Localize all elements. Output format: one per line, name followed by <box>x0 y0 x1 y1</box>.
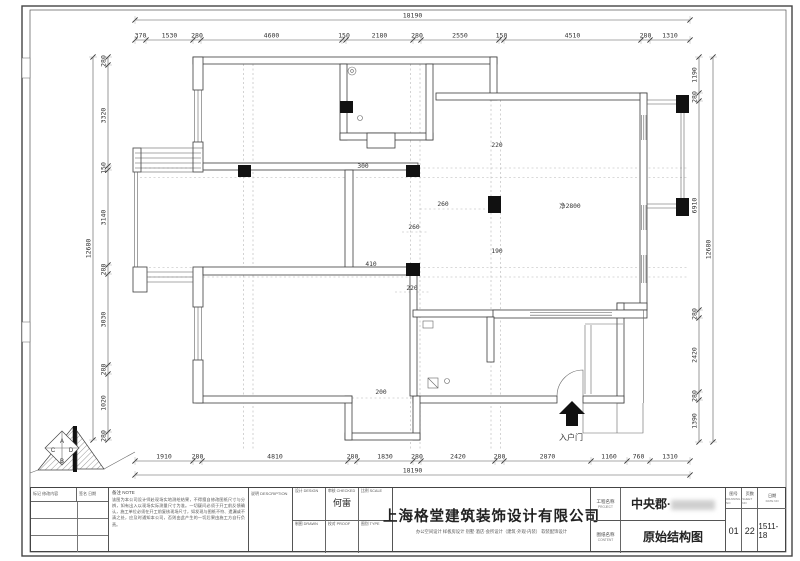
note-text: 该图为本公司设计师赴现场实地测绘结果，不得擅自修改图纸尺寸与分辨，如有出入以现场… <box>112 497 245 528</box>
personnel-cell: 审核 CHECKED何雷 <box>326 488 359 521</box>
dim-label: 1390 <box>691 413 699 429</box>
dim-label: 1020 <box>100 395 108 411</box>
columns-layer <box>238 95 689 276</box>
walls-layer <box>133 57 647 440</box>
personnel-value: 何雷 <box>326 496 358 509</box>
dim-label: 280 <box>411 453 423 461</box>
dim-label: 4810 <box>267 453 283 461</box>
personnel-label: 比例 SCALE <box>359 488 392 494</box>
project-name: 中央郡· <box>631 497 671 511</box>
dim-label: 370 <box>135 32 147 40</box>
drawing-no-value: 01 <box>726 509 741 553</box>
dim-label: 280 <box>494 453 506 461</box>
interior-dim: 260 <box>437 201 449 208</box>
interior-dim: 190 <box>491 248 503 255</box>
personnel-cell: 制图 DRAWN <box>293 521 326 554</box>
logo-letter: C <box>51 448 56 454</box>
revision-row <box>31 519 108 536</box>
note-block: 备注 NOTE 该图为本公司设计师赴现场实地测绘结果，不得擅自修改图纸尺寸与分辨… <box>109 488 249 551</box>
dim-label: 280 <box>192 453 204 461</box>
dim-label: 2180 <box>372 32 388 40</box>
sheet-no-label-en: SHEET NO <box>742 497 757 505</box>
dim-label: 280 <box>640 32 652 40</box>
dim-label: 1830 <box>377 453 393 461</box>
dim-label: 3320 <box>100 108 108 124</box>
dim-label: 280 <box>691 91 699 103</box>
dim-label: 280 <box>100 430 108 442</box>
drawing-sheet: 入户门 300 220 260 260 410 220 190 200 净280… <box>0 0 800 561</box>
project-label-en: PROJECT <box>598 505 613 509</box>
interior-dim: 200 <box>375 389 387 396</box>
sheet-no-value: 22 <box>742 509 757 553</box>
dim-label: 2420 <box>691 347 699 363</box>
interior-dim: 220 <box>406 285 418 292</box>
drawing-title: 原始结构图 <box>621 528 725 545</box>
interior-dim: 220 <box>491 142 503 149</box>
dim-label: 1160 <box>601 453 617 461</box>
interior-dim: 410 <box>365 261 377 268</box>
interior-dim: 300 <box>357 163 369 170</box>
entry-door-arc <box>557 370 583 396</box>
content-label-en: CONTENT <box>598 538 613 542</box>
dim-label: 6910 <box>691 198 699 214</box>
logo-letter: D <box>69 448 74 454</box>
entry-arrow-icon <box>559 401 585 426</box>
company-services: 办公空间设计 样板房设计 别墅·酒店·会所设计（建筑·外观·内装） 软装配饰设计 <box>416 529 567 535</box>
dim-label: 280 <box>347 453 359 461</box>
company-block: 上海格堂建筑装饰设计有限公司 办公空间设计 样板房设计 别墅·酒店·会所设计（建… <box>393 488 591 551</box>
logo-letter: B <box>60 459 64 465</box>
revision-header-1: 标记 修改内容 <box>31 488 77 501</box>
company-name: 上海格堂建筑装饰设计有限公司 <box>383 505 600 526</box>
project-block: 工程名称 PROJECT 中央郡· 图纸名称 CONTENT 原始结构图 <box>591 488 726 551</box>
dim-label: 12680 <box>85 239 93 259</box>
dim-label: 1310 <box>662 453 678 461</box>
dim-label: 3030 <box>100 312 108 328</box>
dim-label: 280 <box>691 390 699 402</box>
dim-label: 280 <box>691 308 699 320</box>
revision-header-2: 签名 日期 <box>77 488 97 501</box>
dim-label: 2420 <box>450 453 466 461</box>
personnel-cell: 校对 PROOF <box>326 521 359 554</box>
title-block: 标记 修改内容 签名 日期 备注 NOTE 该图为本公司设计师赴现场实地测绘结果… <box>30 487 786 552</box>
dim-label: 4600 <box>264 32 280 40</box>
dim-label: 150 <box>338 32 350 40</box>
frame-mark <box>22 58 30 78</box>
dim-label: 4510 <box>565 32 581 40</box>
dim-label: 1910 <box>156 453 172 461</box>
dim-label: 150 <box>496 32 508 40</box>
north-logo: A B C D <box>30 426 135 473</box>
date-value: 1511-18 <box>758 509 786 553</box>
dim-label: 12680 <box>705 240 713 260</box>
dim-label: 150 <box>100 162 108 174</box>
note-label: 备注 NOTE <box>112 490 245 496</box>
frame-mark <box>22 322 30 342</box>
personnel-label: 校对 PROOF <box>326 521 358 527</box>
dim-label: 1530 <box>162 32 178 40</box>
dim-label: 280 <box>100 55 108 67</box>
personnel-label: 设计 DESIGN <box>293 488 325 494</box>
dim-label: 1190 <box>691 67 699 83</box>
dim-label: 280 <box>100 264 108 276</box>
logo-letter: A <box>60 439 64 445</box>
personnel-label: 审核 CHECKED <box>326 488 358 494</box>
dimension-layer: 3701530280460015021802802550150451028013… <box>85 12 717 479</box>
date-label-en: DATE NO <box>766 499 779 503</box>
interior-dim: 260 <box>408 224 420 231</box>
dim-label: 2870 <box>540 453 556 461</box>
dim-label: 3140 <box>100 210 108 226</box>
dim-label: 18190 <box>403 467 423 475</box>
description-label: 说明 DESCRIPTION <box>249 488 292 500</box>
dim-label: 280 <box>411 32 423 40</box>
personnel-cell: 设计 DESIGN <box>293 488 326 521</box>
revision-table: 标记 修改内容 签名 日期 <box>31 488 109 551</box>
dim-label: 760 <box>633 453 645 461</box>
dim-label: 280 <box>100 364 108 376</box>
description-column: 说明 DESCRIPTION <box>249 488 293 551</box>
dim-label: 18190 <box>403 12 423 20</box>
dim-label: 2550 <box>452 32 468 40</box>
redacted-text <box>671 500 715 510</box>
personnel-grid: 设计 DESIGN 审核 CHECKED何雷 比例 SCALE 制图 DRAWN… <box>293 488 393 551</box>
dim-label: 280 <box>191 32 203 40</box>
floor-plan-svg: 入户门 300 220 260 260 410 220 190 200 净280… <box>0 0 800 561</box>
revision-row <box>31 502 108 519</box>
numbers-block: 图号DRAWING NO 01 页数SHEET NO 22 日期DATE NO … <box>726 488 786 551</box>
revision-row <box>31 536 108 552</box>
fixtures-layer <box>348 67 583 396</box>
ceiling-height-label: 净2800 <box>559 201 581 210</box>
dim-label: 1310 <box>662 32 678 40</box>
entry-door-label: 入户门 <box>559 432 583 442</box>
personnel-label: 制图 DRAWN <box>293 521 325 527</box>
drawing-no-label-en: DRAWING NO <box>726 497 741 505</box>
